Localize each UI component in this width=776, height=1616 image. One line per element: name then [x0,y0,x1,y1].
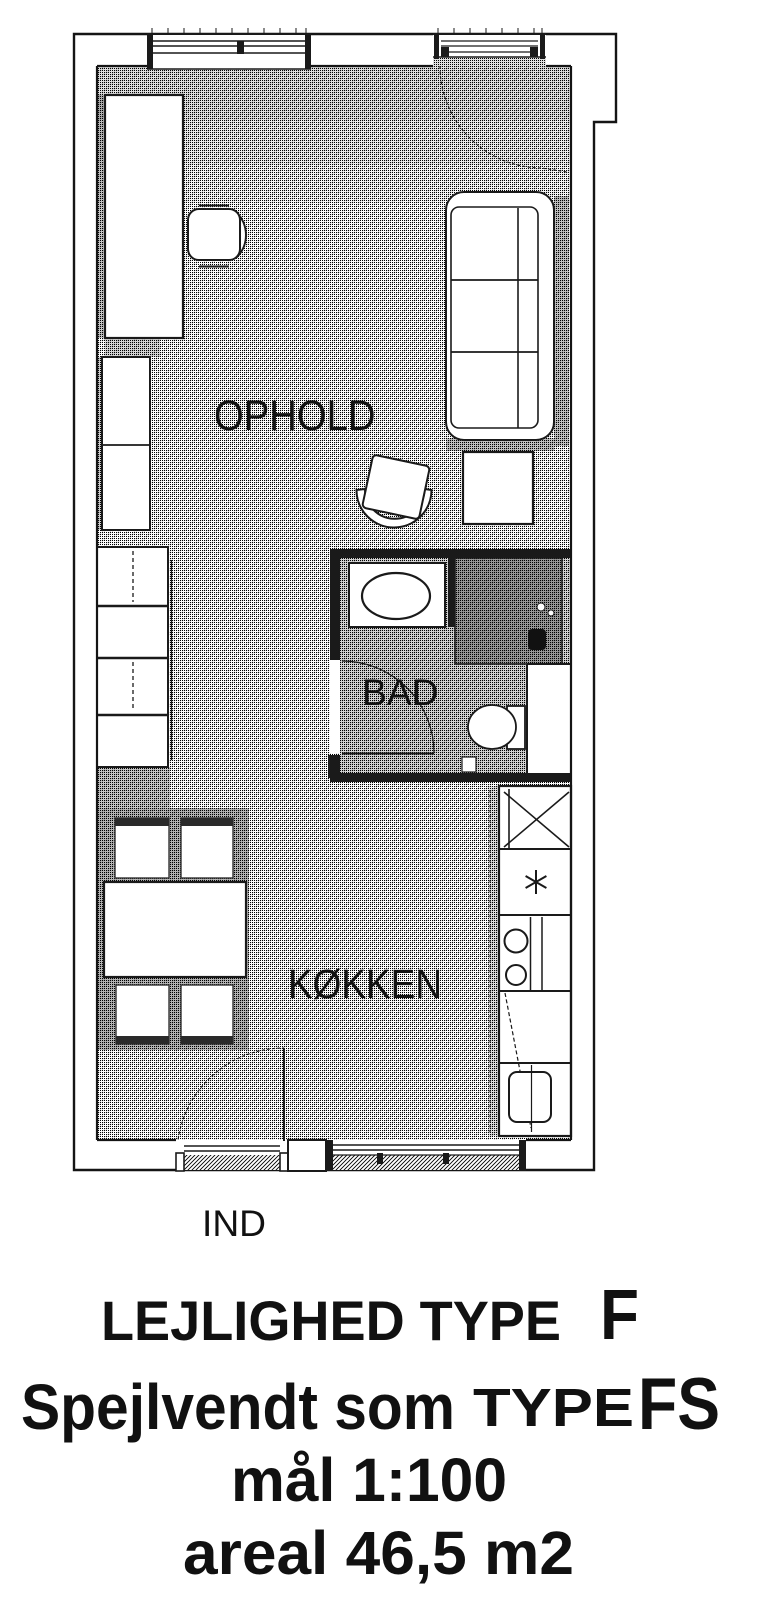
svg-text:OPHOLD: OPHOLD [214,393,376,440]
svg-text:mål 1:100: mål 1:100 [231,1446,507,1514]
svg-text:F: F [600,1276,639,1355]
svg-text:FS: FS [638,1364,720,1445]
svg-text:areal 46,5 m2: areal 46,5 m2 [183,1519,574,1587]
svg-text:LEJLIGHED TYPE: LEJLIGHED TYPE [101,1289,561,1352]
svg-text:BAD: BAD [362,672,439,713]
svg-text:IND: IND [202,1203,266,1244]
svg-text:TYPE: TYPE [473,1378,634,1438]
svg-text:KØKKEN: KØKKEN [288,961,442,1007]
svg-text:Spejlvendt som: Spejlvendt som [21,1371,455,1443]
